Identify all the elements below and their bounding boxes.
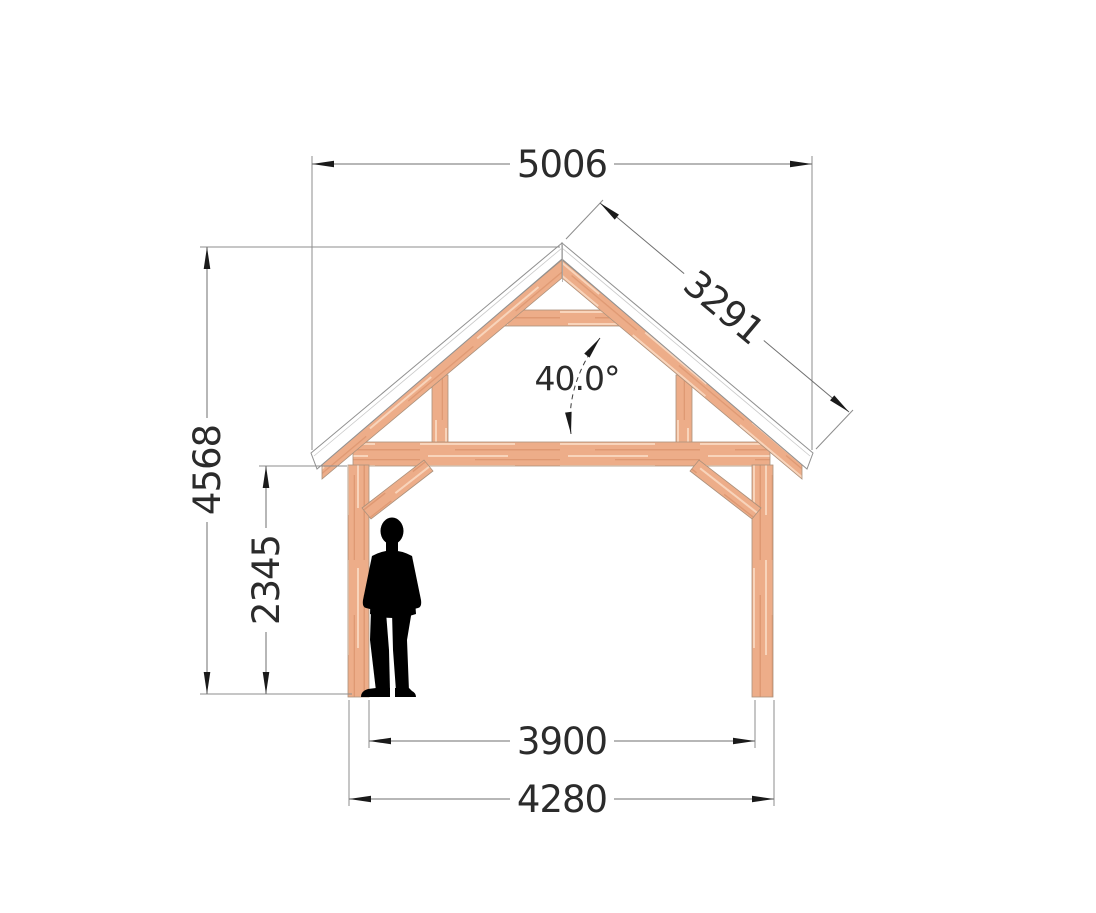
dimension-label: 4280 (517, 778, 607, 821)
figure-leg-right (392, 610, 412, 691)
dimension-label: 2345 (245, 535, 288, 625)
drawing-root: 5006 4568 2345 3900 (0, 0, 1096, 913)
dim-inner-span: 3900 (369, 700, 755, 763)
figure-leg-left (370, 610, 390, 691)
dimension-label: 5006 (517, 143, 607, 186)
angle-label: 40.0° (535, 359, 620, 398)
angle-annotation: 40.0° (535, 338, 620, 434)
tie-beam (353, 442, 770, 466)
figure-shoe-right (395, 688, 416, 697)
dimension-label: 4568 (186, 425, 229, 515)
post-left (348, 465, 369, 697)
dim-clearance-height: 2345 (245, 466, 347, 694)
knee-brace-right (690, 460, 761, 519)
post-right (752, 465, 773, 697)
human-scale-figure (361, 518, 421, 698)
figure-neck (386, 540, 398, 551)
extension-line (816, 410, 853, 449)
extension-line (566, 200, 603, 239)
dimension-label: 3900 (517, 720, 607, 763)
elevation-drawing: 5006 4568 2345 3900 (0, 0, 1096, 913)
knee-brace-left (362, 460, 433, 519)
